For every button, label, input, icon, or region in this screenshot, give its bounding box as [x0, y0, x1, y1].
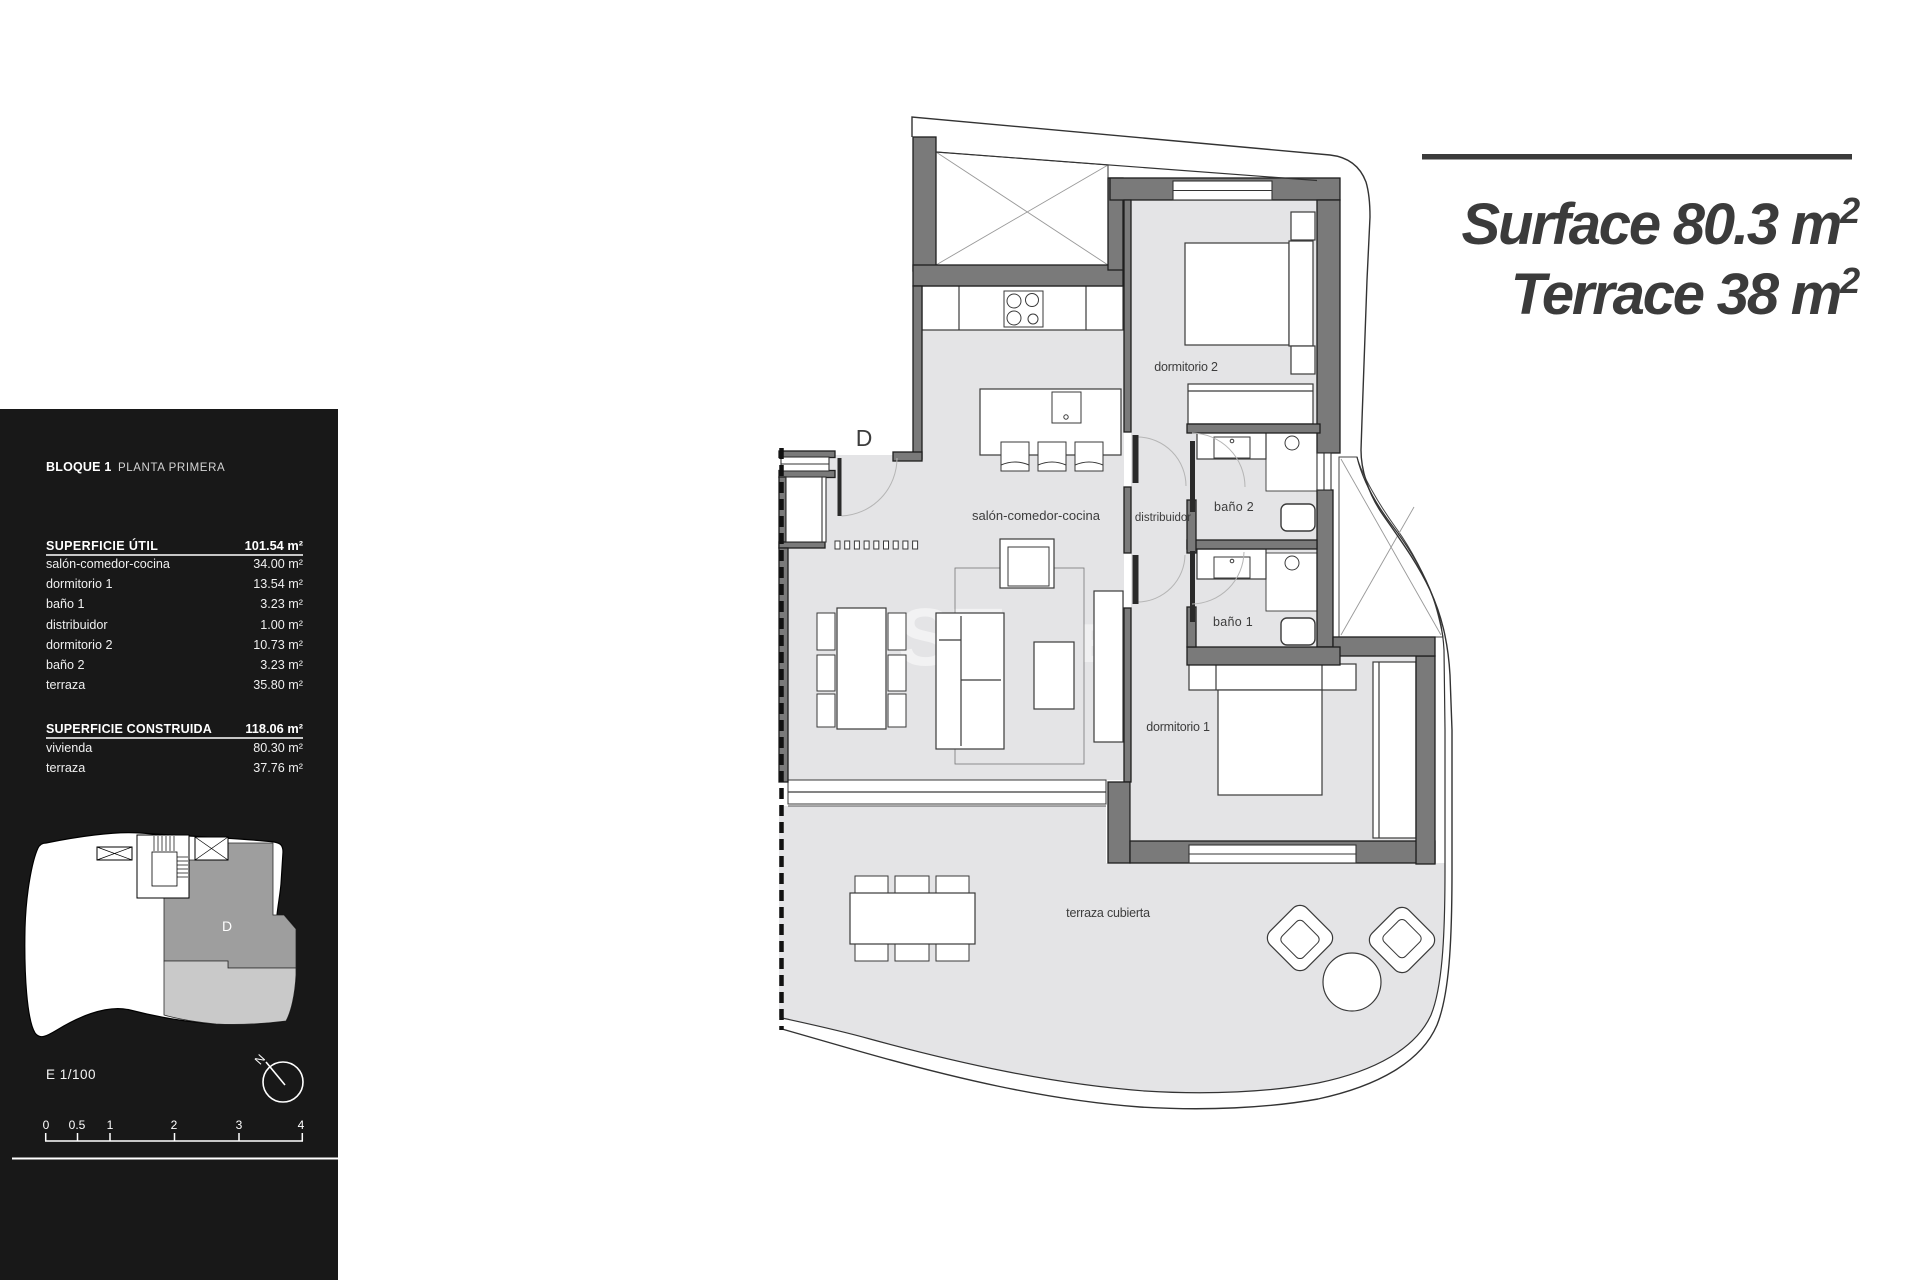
svg-text:37.76 m²: 37.76 m² — [253, 761, 303, 775]
svg-text:terraza: terraza — [46, 678, 85, 692]
svg-text:0.5: 0.5 — [69, 1118, 86, 1132]
svg-text:dormitorio 1: dormitorio 1 — [1146, 720, 1210, 734]
svg-text:118.06 m²: 118.06 m² — [245, 721, 303, 736]
svg-text:D: D — [222, 918, 232, 934]
svg-text:80.30 m²: 80.30 m² — [253, 741, 303, 755]
svg-text:salón-comedor-cocina: salón-comedor-cocina — [972, 508, 1101, 523]
svg-text:dormitorio 2: dormitorio 2 — [1154, 360, 1218, 374]
svg-text:3.23 m²: 3.23 m² — [260, 658, 303, 672]
svg-text:1.00 m²: 1.00 m² — [260, 618, 303, 632]
svg-text:D: D — [856, 425, 873, 451]
svg-text:Surface 80.3 m2: Surface 80.3 m2 — [1462, 190, 1861, 257]
svg-text:baño 1: baño 1 — [1213, 615, 1253, 629]
svg-text:1: 1 — [107, 1118, 114, 1132]
svg-text:3.23 m²: 3.23 m² — [260, 597, 303, 611]
svg-text:E 1/100: E 1/100 — [46, 1067, 96, 1082]
svg-text:baño 2: baño 2 — [1214, 500, 1254, 514]
svg-text:PLANTA PRIMERA: PLANTA PRIMERA — [118, 462, 225, 474]
svg-text:35.80 m²: 35.80 m² — [253, 678, 303, 692]
svg-text:2: 2 — [171, 1118, 178, 1132]
svg-text:vivienda: vivienda — [46, 741, 92, 755]
svg-text:13.54 m²: 13.54 m² — [253, 577, 303, 591]
svg-text:baño 1: baño 1 — [46, 597, 85, 611]
svg-text:34.00 m²: 34.00 m² — [253, 557, 303, 571]
svg-text:SUPERFICIE ÚTIL: SUPERFICIE ÚTIL — [46, 538, 158, 553]
svg-text:distribuidor: distribuidor — [1135, 512, 1191, 524]
svg-text:dormitorio 1: dormitorio 1 — [46, 577, 113, 591]
svg-text:10.73 m²: 10.73 m² — [253, 638, 303, 652]
svg-text:0: 0 — [43, 1118, 50, 1132]
svg-text:SUPERFICIE CONSTRUIDA: SUPERFICIE CONSTRUIDA — [46, 722, 212, 736]
svg-text:baño 2: baño 2 — [46, 658, 85, 672]
svg-text:distribuidor: distribuidor — [46, 618, 108, 632]
svg-text:Terrace 38 m2: Terrace 38 m2 — [1511, 260, 1860, 327]
svg-text:4: 4 — [298, 1118, 305, 1132]
svg-text:terraza cubierta: terraza cubierta — [1066, 906, 1150, 920]
svg-text:101.54 m²: 101.54 m² — [245, 538, 303, 553]
svg-text:salón-comedor-cocina: salón-comedor-cocina — [46, 557, 170, 571]
svg-text:BLOQUE 1: BLOQUE 1 — [46, 460, 112, 474]
svg-text:3: 3 — [236, 1118, 243, 1132]
svg-text:dormitorio 2: dormitorio 2 — [46, 638, 113, 652]
svg-text:terraza: terraza — [46, 761, 85, 775]
